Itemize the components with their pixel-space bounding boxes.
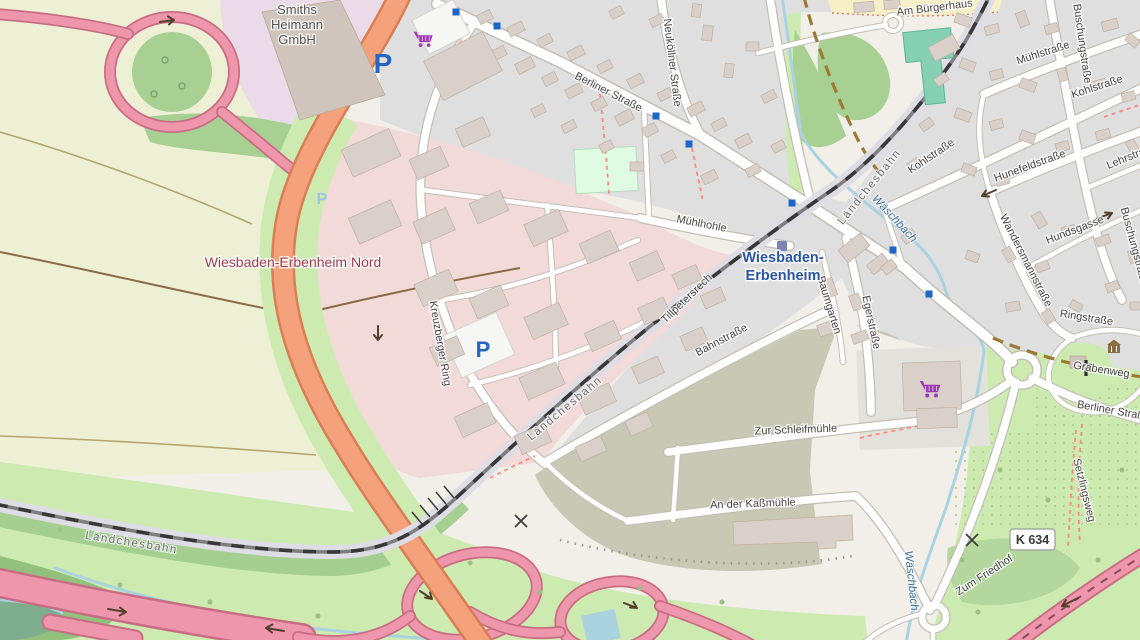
tree-icon [118,583,123,588]
bus-stop-icon [494,23,501,30]
building [702,25,714,41]
building [1005,301,1020,312]
tree-icon [976,610,981,615]
company-name-label: GmbH [278,32,316,47]
locality-name-label: Wiesbaden-Erbenheim Nord [205,254,382,270]
tree-icon [316,614,321,619]
building [724,63,735,78]
tree-icon [720,600,725,605]
tree-icon [960,558,965,563]
tree-icon [638,586,643,591]
station-name-label: Erbenheim [746,268,821,284]
parking-icon: P [476,337,491,362]
building [691,4,702,18]
map-canvas[interactable]: PPP Berliner StraßeNeuköllner StraßeMühl… [0,0,1140,640]
building [630,162,644,171]
company-name-label: Heimann [271,17,323,32]
bus-stop-icon [789,200,796,207]
tree-icon [538,590,543,595]
bus-stop-icon [653,113,660,120]
road-shield: K 634 [1010,529,1055,550]
building [1130,302,1140,310]
svg-text:P: P [476,337,491,362]
tree-icon [58,528,63,533]
tree-icon [1120,468,1125,473]
bus-stop-icon [890,247,897,254]
svg-text:P: P [374,48,393,79]
bus-stop-icon [453,9,460,16]
station-name-label: Wiesbaden- [742,250,823,266]
parking-faint-icon: P [317,191,328,208]
bus-stop-icon [926,291,933,298]
tree-icon [468,561,473,566]
tree-icon [1096,558,1101,563]
road-ref-label: K 634 [1016,533,1049,547]
map-svg[interactable]: PPP Berliner StraßeNeuköllner StraßeMühl… [0,0,1140,640]
building [854,1,875,13]
tree-icon [998,468,1003,473]
company-name-label: Smiths [277,2,317,17]
tree-icon [1046,498,1051,503]
tree-icon [208,600,213,605]
building [746,42,759,51]
svg-text:P: P [317,191,328,208]
parking-icon: P [374,48,393,79]
bus-stop-icon [686,141,693,148]
